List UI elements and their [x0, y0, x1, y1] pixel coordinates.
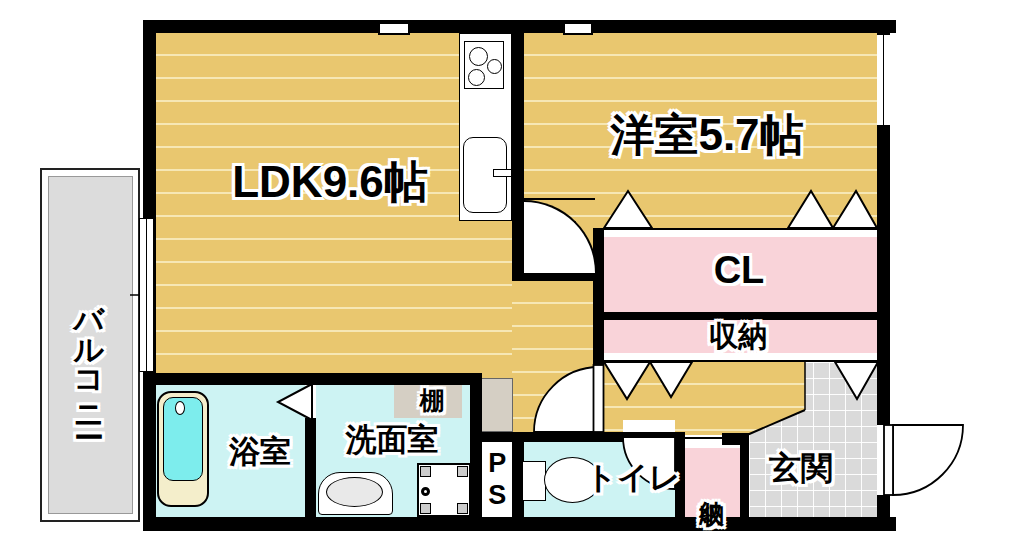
stove-burner-3 — [468, 69, 485, 86]
wall-storage-right — [740, 433, 749, 517]
western-room-label: 洋室5.7帖 — [610, 112, 803, 158]
toilet-label: トイレ — [585, 462, 680, 495]
closet-label: CL — [714, 251, 765, 291]
closet-door-track — [604, 228, 877, 237]
floor-plan: LDK9.6帖 洋室5.7帖 CL 収納 バルコニー 浴室 洗面室 棚 PS ト… — [0, 0, 1009, 546]
washer-foot-tl — [420, 466, 431, 477]
washer-foot-br — [457, 503, 468, 514]
washer-foot-bl — [420, 503, 431, 514]
wall-closet-left — [593, 228, 604, 365]
storage-lower-area — [685, 448, 740, 517]
stove-burner-1 — [469, 47, 488, 66]
pipe-space-label: PS — [483, 448, 511, 512]
washroom-label: 洗面室 — [346, 424, 439, 457]
washer-drain — [421, 487, 430, 496]
toilet-tank — [522, 461, 546, 501]
wall-bath-wash — [305, 418, 316, 517]
wall-ldk-western — [512, 33, 524, 281]
washer-foot-tr — [457, 466, 468, 477]
bathroom-label: 浴室 — [229, 436, 291, 469]
balcony-label: バルコニー — [73, 285, 105, 421]
hallway-door-leaf — [594, 365, 604, 432]
ldk-label: LDK9.6帖 — [232, 159, 428, 205]
wall-wash-right — [470, 373, 482, 517]
entrance-label: 玄関 — [769, 452, 833, 486]
bathtub-drain — [175, 401, 185, 415]
kitchen-faucet — [493, 169, 512, 177]
entrance-door-swing — [893, 425, 963, 495]
corridor-floor — [512, 281, 595, 442]
window-top-2 — [563, 22, 593, 35]
shelf-label: 棚 — [420, 387, 445, 413]
storage-upper-track — [604, 353, 877, 362]
window-top-1 — [378, 22, 410, 35]
stove-burner-2 — [487, 59, 502, 74]
storage-upper-label: 収納 — [709, 321, 767, 351]
wall-toilet-top — [470, 432, 685, 442]
wall-top — [143, 20, 896, 33]
window-right — [877, 33, 890, 127]
wall-entrance-top — [722, 433, 749, 445]
entrance-door-leaf — [884, 425, 893, 495]
wall-bottom — [143, 517, 896, 531]
wall-door-stub — [512, 272, 600, 281]
vanity-basin — [326, 477, 383, 507]
window-balcony — [139, 218, 154, 372]
wall-bath-top — [143, 373, 482, 385]
corridor-counter — [480, 378, 513, 432]
wall-right-lower — [877, 495, 890, 531]
bathroom-door-gap — [305, 385, 316, 418]
